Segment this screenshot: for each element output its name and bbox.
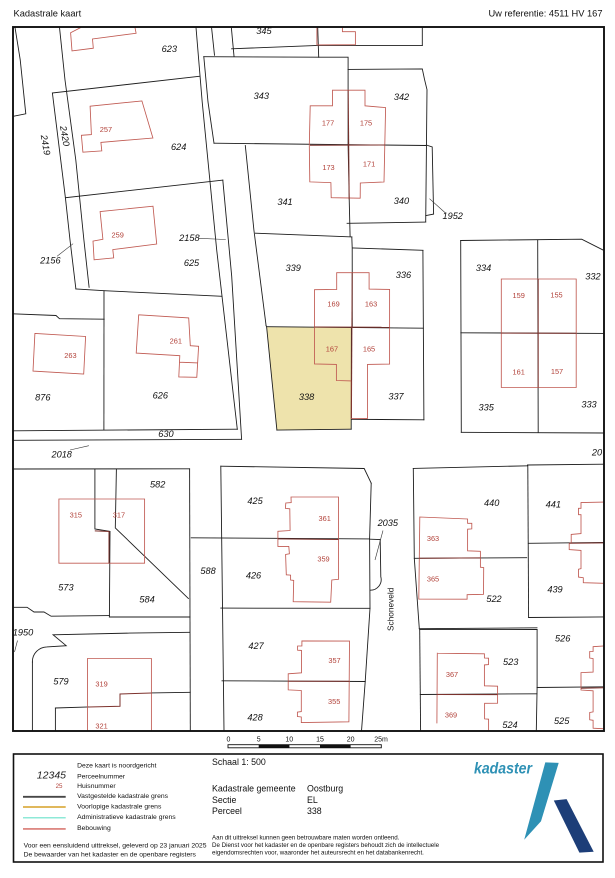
svg-text:Schoneveld: Schoneveld <box>386 587 396 631</box>
svg-text:630: 630 <box>158 429 174 439</box>
svg-text:523: 523 <box>503 657 519 667</box>
svg-text:2018: 2018 <box>50 450 72 460</box>
svg-text:343: 343 <box>254 91 270 101</box>
svg-text:Perceelnummer: Perceelnummer <box>77 773 126 780</box>
svg-text:337: 337 <box>388 392 404 402</box>
svg-text:Deze kaart is noordgericht: Deze kaart is noordgericht <box>77 762 156 769</box>
svg-text:257: 257 <box>100 125 112 134</box>
svg-text:171: 171 <box>363 160 375 169</box>
svg-text:428: 428 <box>247 713 263 723</box>
svg-text:332: 332 <box>585 272 600 282</box>
svg-text:573: 573 <box>58 582 74 592</box>
svg-text:582: 582 <box>150 480 165 490</box>
svg-text:345: 345 <box>256 26 272 36</box>
svg-text:2158: 2158 <box>178 233 200 243</box>
svg-text:441: 441 <box>546 500 561 510</box>
svg-text:155: 155 <box>550 291 562 300</box>
svg-text:163: 163 <box>365 299 377 308</box>
svg-text:263: 263 <box>64 351 76 360</box>
svg-text:335: 335 <box>479 403 495 413</box>
svg-text:525: 525 <box>554 716 570 726</box>
svg-text:522: 522 <box>486 594 501 604</box>
svg-text:1950: 1950 <box>13 628 34 638</box>
svg-text:Uw referentie: 4511 HV 167: Uw referentie: 4511 HV 167 <box>488 9 602 19</box>
svg-text:359: 359 <box>317 555 329 564</box>
svg-text:439: 439 <box>547 585 562 595</box>
svg-text:167: 167 <box>326 345 338 354</box>
svg-text:440: 440 <box>484 498 500 508</box>
svg-text:15: 15 <box>316 736 324 743</box>
svg-text:Voorlopige kadastrale grens: Voorlopige kadastrale grens <box>77 803 162 810</box>
svg-text:579: 579 <box>53 676 68 686</box>
svg-text:357: 357 <box>328 656 340 665</box>
svg-text:12345: 12345 <box>37 770 66 782</box>
svg-text:177: 177 <box>322 118 334 127</box>
svg-text:2035: 2035 <box>377 518 399 528</box>
svg-text:Schaal 1: 500: Schaal 1: 500 <box>212 757 266 767</box>
svg-text:kadaster: kadaster <box>474 761 533 778</box>
svg-text:526: 526 <box>555 634 571 644</box>
svg-text:340: 340 <box>394 196 410 206</box>
svg-text:361: 361 <box>319 514 331 523</box>
svg-text:173: 173 <box>322 163 334 172</box>
svg-text:426: 426 <box>246 571 262 581</box>
svg-text:De bewaarder van het kadaster: De bewaarder van het kadaster en de open… <box>24 852 197 859</box>
svg-text:369: 369 <box>445 710 457 719</box>
svg-text:315: 315 <box>70 511 82 520</box>
svg-text:Perceel: Perceel <box>212 806 242 816</box>
svg-text:623: 623 <box>162 44 178 54</box>
svg-text:338: 338 <box>307 806 322 816</box>
svg-text:624: 624 <box>171 142 186 152</box>
svg-text:524: 524 <box>502 720 517 730</box>
svg-text:2156: 2156 <box>39 256 61 266</box>
svg-text:Huisnummer: Huisnummer <box>77 783 116 790</box>
svg-text:eigendomsrechten voor, waarond: eigendomsrechten voor, waaronder het aut… <box>212 850 424 857</box>
svg-text:588: 588 <box>200 566 216 576</box>
svg-text:5: 5 <box>257 736 261 743</box>
svg-text:Administratieve kadastrale gre: Administratieve kadastrale grens <box>77 814 176 821</box>
svg-text:367: 367 <box>446 670 458 679</box>
svg-text:363: 363 <box>427 534 439 543</box>
svg-text:333: 333 <box>581 400 597 410</box>
svg-text:341: 341 <box>277 197 292 207</box>
svg-text:Kadastrale gemeente: Kadastrale gemeente <box>212 784 296 794</box>
svg-text:Voor een eensluidend uittrekse: Voor een eensluidend uittreksel, gelever… <box>24 843 207 850</box>
svg-text:161: 161 <box>513 368 525 377</box>
svg-text:De Dienst voor het kadaster en: De Dienst voor het kadaster en de openba… <box>212 842 440 849</box>
svg-text:Oostburg: Oostburg <box>307 784 343 794</box>
svg-text:EL: EL <box>307 795 318 805</box>
svg-text:425: 425 <box>247 496 263 506</box>
svg-text:20: 20 <box>347 736 355 743</box>
svg-text:625: 625 <box>184 258 200 268</box>
svg-text:336: 336 <box>396 270 412 280</box>
svg-text:342: 342 <box>394 92 409 102</box>
svg-text:876: 876 <box>35 393 51 403</box>
svg-text:339: 339 <box>286 263 301 273</box>
svg-text:25: 25 <box>56 783 63 790</box>
svg-text:Vastgestelde kadastrale grens: Vastgestelde kadastrale grens <box>77 793 169 800</box>
svg-text:25m: 25m <box>374 736 388 743</box>
svg-text:175: 175 <box>360 118 372 127</box>
svg-text:317: 317 <box>113 511 125 520</box>
svg-text:159: 159 <box>513 291 525 300</box>
svg-text:Aan dit uittreksel kunnen geen: Aan dit uittreksel kunnen geen betrouwba… <box>212 835 400 842</box>
svg-text:355: 355 <box>328 697 340 706</box>
svg-text:261: 261 <box>170 336 182 345</box>
svg-text:584: 584 <box>139 594 154 604</box>
svg-text:10: 10 <box>285 736 293 743</box>
svg-text:338: 338 <box>299 392 315 402</box>
svg-text:319: 319 <box>95 680 107 689</box>
svg-text:321: 321 <box>95 722 107 731</box>
svg-text:1952: 1952 <box>442 211 462 221</box>
svg-text:365: 365 <box>427 574 439 583</box>
svg-text:259: 259 <box>112 230 124 239</box>
svg-text:Kadastrale kaart: Kadastrale kaart <box>14 9 82 19</box>
svg-text:169: 169 <box>327 299 339 308</box>
svg-text:157: 157 <box>551 367 563 376</box>
svg-text:Sectie: Sectie <box>212 795 237 805</box>
svg-text:165: 165 <box>363 344 375 353</box>
svg-text:334: 334 <box>476 263 491 273</box>
svg-text:0: 0 <box>227 736 231 743</box>
svg-text:427: 427 <box>248 641 264 651</box>
svg-text:20: 20 <box>591 447 603 457</box>
svg-text:Bebouwing: Bebouwing <box>77 825 111 832</box>
svg-text:626: 626 <box>153 391 169 401</box>
